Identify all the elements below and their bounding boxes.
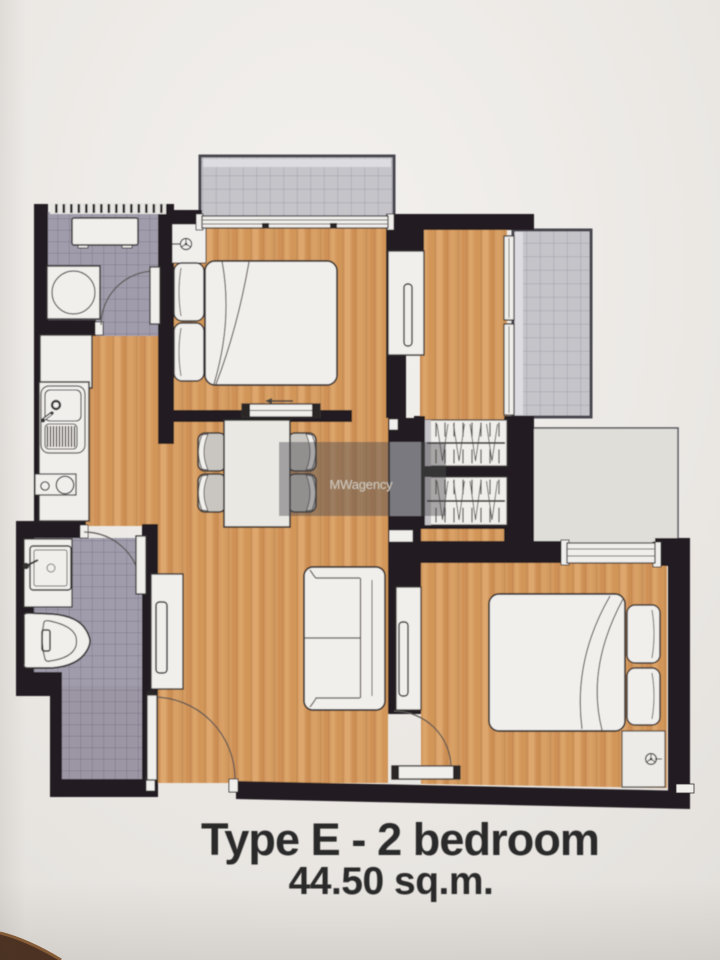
svg-text:Type E - 2 bedroom: Type E - 2 bedroom bbox=[201, 814, 599, 865]
svg-text:44.50 sq.m.: 44.50 sq.m. bbox=[289, 860, 494, 903]
svg-text:MWagency: MWagency bbox=[330, 477, 394, 492]
